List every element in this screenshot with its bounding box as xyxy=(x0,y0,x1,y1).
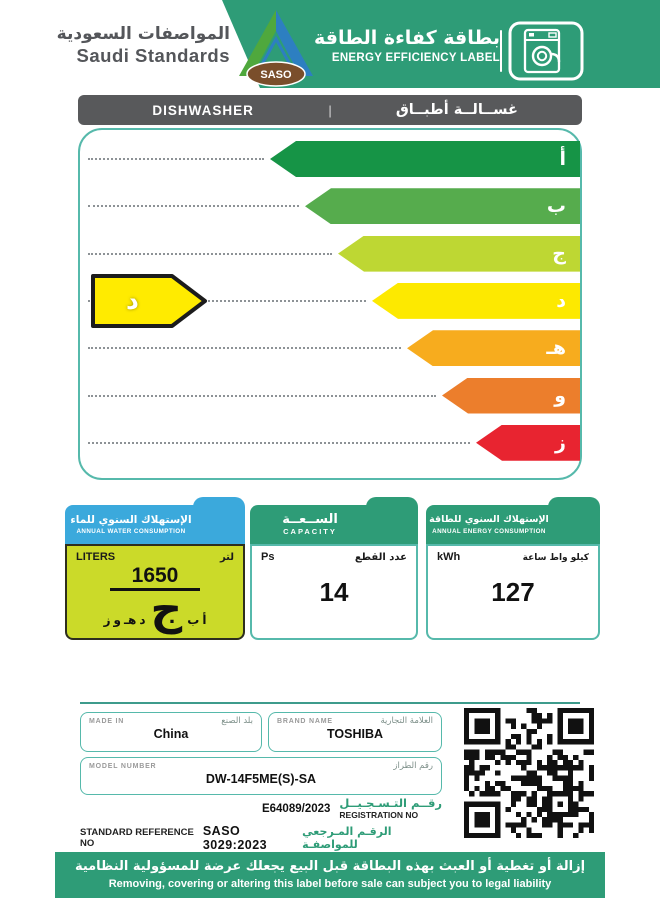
water-scale-letter: أ xyxy=(202,614,206,626)
capacity-title-english: CAPACITY xyxy=(250,527,370,536)
product-name-english: DISHWASHER xyxy=(78,103,328,118)
water-unit-english: LITERS xyxy=(76,551,115,563)
registration-label-arabic: رقــم التـسـجـيــل xyxy=(339,797,442,810)
standard-label-arabic: الرقـم المـرجعي للمواصفـة xyxy=(302,825,442,851)
capacity-header: الســعــة CAPACITY xyxy=(250,505,418,544)
grade-letter: ب xyxy=(547,195,566,217)
grade-row: ز xyxy=(80,425,580,461)
grade-row: ج xyxy=(80,236,580,272)
grade-arrow: أ xyxy=(270,141,580,177)
label-title: بطاقة كفاءة الطاقة ENERGY EFFICIENCY LAB… xyxy=(296,27,500,67)
capacity-unit-arabic: عدد القطع xyxy=(355,552,407,563)
grade-arrow: هـ xyxy=(407,330,580,366)
selected-grade-arrow-shape xyxy=(90,273,208,329)
water-scale-letter: ب xyxy=(187,614,199,626)
dishwasher-icon xyxy=(508,21,584,81)
grade-letter: أ xyxy=(559,148,566,170)
water-header: الإستهلاك السنوي للماء ANNUAL WATER CONS… xyxy=(65,505,245,544)
grade-dotted-line xyxy=(88,205,299,207)
water-title-arabic: الإستهلاك السنوي للماء xyxy=(65,513,197,527)
grade-arrow: ب xyxy=(305,188,580,224)
brand-name-box: BRAND NAME العلامة التجارية TOSHIBA xyxy=(268,712,442,752)
water-grade-scale: أ ب ج د هـ و ز xyxy=(67,593,243,626)
standard-value: SASO 3029:2023 xyxy=(203,824,302,852)
made-in-box: MADE IN بلد الصنع China xyxy=(80,712,262,752)
grade-row: و xyxy=(80,378,580,414)
standard-reference-row: STANDARD REFERENCE NO SASO 3029:2023 الر… xyxy=(80,824,442,852)
separator-line xyxy=(80,702,580,704)
registration-row: E64089/2023 رقــم التـسـجـيــل REGISTRAT… xyxy=(80,797,442,821)
saso-wordmark: SASO xyxy=(260,69,292,81)
water-scale-letter: ج xyxy=(151,593,183,626)
label-title-arabic: بطاقة كفاءة الطاقة xyxy=(296,27,500,50)
energy-title-arabic: الإستهلاك السنوي للطاقة xyxy=(426,513,552,527)
grade-dotted-line xyxy=(88,442,470,444)
made-in-label-english: MADE IN xyxy=(89,718,124,725)
legal-warning-english: Removing, covering or altering this labe… xyxy=(55,876,605,893)
grade-letter: هـ xyxy=(546,337,566,359)
grade-dotted-line xyxy=(88,158,264,160)
header-divider-line xyxy=(500,30,502,72)
model-label-english: MODEL NUMBER xyxy=(89,763,156,770)
standard-label-english: STANDARD REFERENCE NO xyxy=(80,827,203,849)
energy-efficiency-label: المواصفات السعودية Saudi Standards SASO … xyxy=(0,0,660,900)
energy-header: الإستهلاك السنوي للطاقة ANNUAL ENERGY CO… xyxy=(426,505,600,544)
model-label-arabic: رقم الطراز xyxy=(393,761,433,771)
label-title-english: ENERGY EFFICIENCY LABEL xyxy=(296,50,500,67)
org-name-arabic: المواصفات السعودية xyxy=(55,24,230,44)
grade-arrow: ج xyxy=(338,236,580,272)
capacity-box: الســعــة CAPACITY Ps عدد القطع 14 xyxy=(250,497,418,640)
registration-label-english: REGISTRATION NO xyxy=(339,810,442,821)
efficiency-grade-chart: أبجدهـوز د xyxy=(78,128,582,480)
capacity-title-arabic: الســعــة xyxy=(250,513,370,527)
product-name-arabic: غســالــة أطبــاق xyxy=(332,102,582,118)
legal-warning-arabic: إزالة أو تغطية أو العبث بهذه البطاقة قبل… xyxy=(55,857,605,876)
model-number-box: MODEL NUMBER رقم الطراز DW-14F5ME(S)-SA xyxy=(80,757,442,795)
grade-letter: ج xyxy=(552,243,566,265)
model-value: DW-14F5ME(S)-SA xyxy=(81,772,441,786)
energy-title-english: ANNUAL ENERGY CONSUMPTION xyxy=(426,527,552,536)
grade-letter: و xyxy=(554,385,566,407)
grade-dotted-line xyxy=(88,395,436,397)
water-body: LITERS لتر 1650 أ ب ج د هـ و ز xyxy=(65,544,245,640)
registration-value: E64089/2023 xyxy=(262,803,330,815)
capacity-body: Ps عدد القطع 14 xyxy=(250,544,418,640)
saudi-standards-logo-text: المواصفات السعودية Saudi Standards xyxy=(55,24,230,68)
water-scale-letter: و xyxy=(113,614,120,626)
product-bar: DISHWASHER | غســالــة أطبــاق xyxy=(78,95,582,125)
grade-arrow: ز xyxy=(476,425,580,461)
water-consumption-box: الإستهلاك السنوي للماء ANNUAL WATER CONS… xyxy=(65,497,245,640)
legal-warning-footer: إزالة أو تغطية أو العبث بهذه البطاقة قبل… xyxy=(55,852,605,898)
energy-body: kWh كيلو واط ساعة 127 xyxy=(426,544,600,640)
grade-row: هـ xyxy=(80,330,580,366)
grade-dotted-line xyxy=(88,347,401,349)
made-in-label-arabic: بلد الصنع xyxy=(221,716,253,726)
grade-arrow: د xyxy=(372,283,580,319)
grade-row: أ xyxy=(80,141,580,177)
grade-letter: د xyxy=(556,290,566,312)
water-scale-letter: ز xyxy=(104,614,111,626)
grade-letter: ز xyxy=(555,432,566,454)
energy-unit-english: kWh xyxy=(437,551,460,563)
water-title-english: ANNUAL WATER CONSUMPTION xyxy=(65,527,197,536)
brand-value: TOSHIBA xyxy=(269,727,441,741)
capacity-value: 14 xyxy=(252,577,416,608)
grade-row: ب xyxy=(80,188,580,224)
qr-code xyxy=(462,708,596,838)
water-scale-letter: د xyxy=(139,614,145,626)
brand-label-english: BRAND NAME xyxy=(277,718,333,725)
grade-dotted-line xyxy=(88,253,332,255)
energy-unit-arabic: كيلو واط ساعة xyxy=(523,553,589,563)
water-unit-arabic: لتر xyxy=(220,552,234,563)
brand-label-arabic: العلامة التجارية xyxy=(380,716,433,726)
energy-consumption-box: الإستهلاك السنوي للطاقة ANNUAL ENERGY CO… xyxy=(426,497,600,640)
made-in-value: China xyxy=(81,727,261,741)
capacity-unit-english: Ps xyxy=(261,551,274,563)
org-name-english: Saudi Standards xyxy=(55,44,230,68)
selected-grade-letter: د xyxy=(126,286,139,315)
selected-grade-indicator: د xyxy=(90,273,208,329)
grade-arrow: و xyxy=(442,378,580,414)
energy-value: 127 xyxy=(428,577,598,608)
water-scale-letter: هـ xyxy=(124,614,136,626)
